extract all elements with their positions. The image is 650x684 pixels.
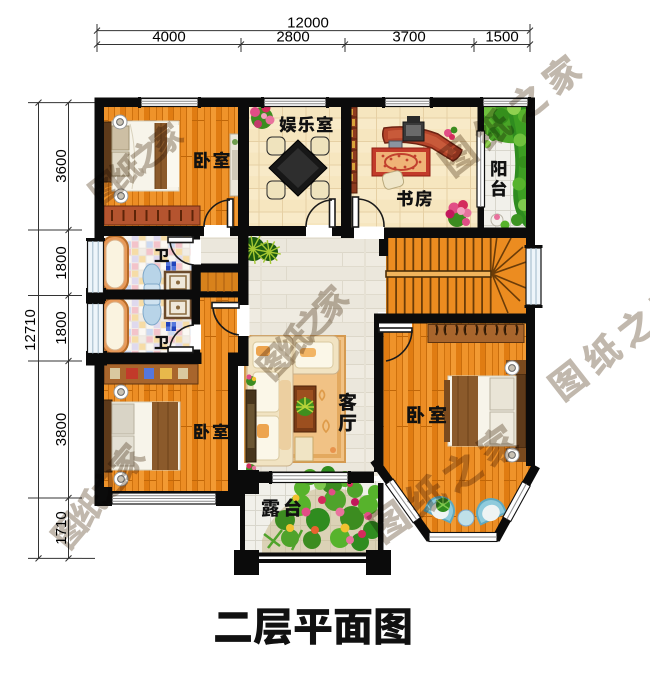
svg-text:3700: 3700 [392, 29, 425, 46]
svg-text:1800: 1800 [53, 246, 70, 279]
svg-text:12710: 12710 [22, 309, 39, 351]
svg-text:3600: 3600 [53, 149, 70, 182]
svg-text:1800: 1800 [53, 311, 70, 344]
svg-text:2800: 2800 [276, 29, 309, 46]
svg-text:1500: 1500 [485, 29, 518, 46]
svg-text:4000: 4000 [152, 29, 185, 46]
svg-text:3800: 3800 [53, 413, 70, 446]
